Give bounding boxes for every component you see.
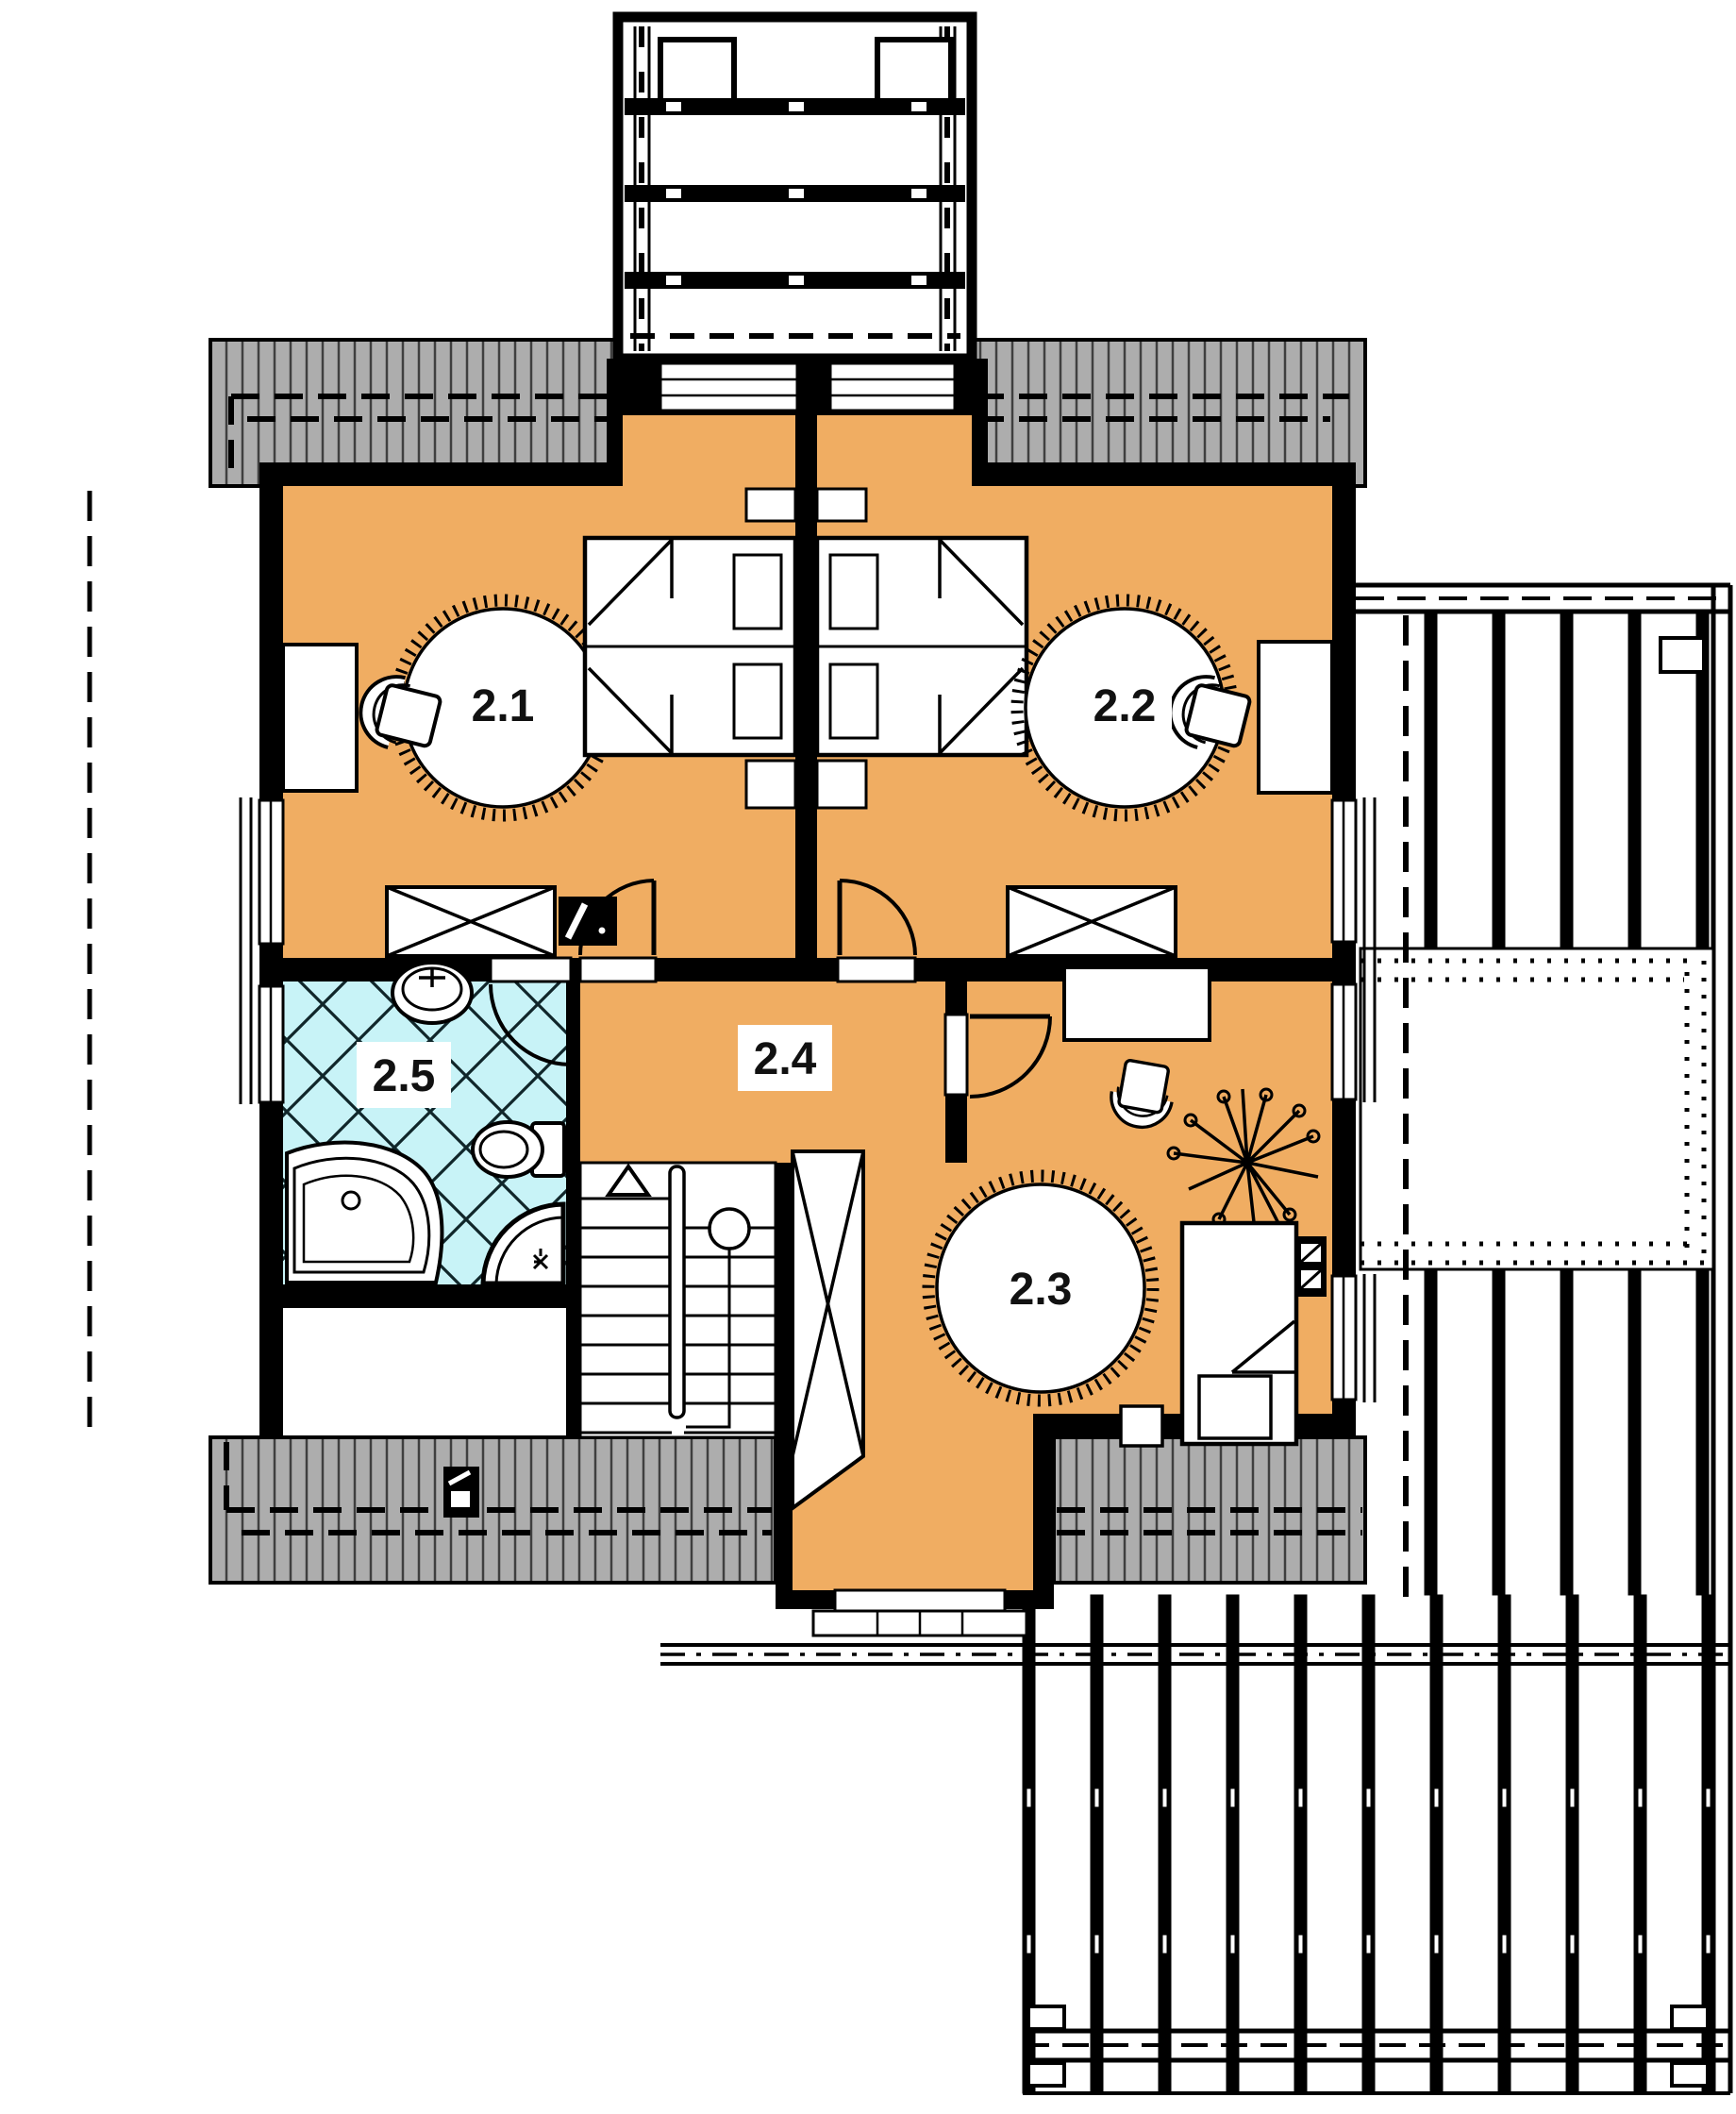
top-balcony-structure: [618, 17, 972, 359]
nightstand-2-3: [1121, 1406, 1162, 1446]
chimney: [443, 1467, 479, 1518]
floor-plan-drawing: 2.1 2.2 2.3 2.4 2.5: [0, 0, 1736, 2114]
shelf-2-1-top: [746, 489, 795, 521]
floor-plan-canvas: 2.1 2.2 2.3 2.4 2.5: [0, 0, 1736, 2114]
toilet: [473, 1122, 564, 1177]
wardrobe-2-2: [1259, 642, 1332, 793]
svg-text:2.3: 2.3: [1010, 1265, 1073, 1315]
heater-2-3: [1296, 1236, 1327, 1297]
stair-newel-post: [709, 1209, 749, 1249]
stair-handrail: [670, 1166, 684, 1418]
balcony-door-bottom: [813, 1590, 1027, 1636]
wardrobe-crossed-2-1: [387, 887, 555, 956]
terrace-opening: [1360, 948, 1713, 1269]
room-label-2-5: 2.5: [357, 1042, 451, 1108]
room-label-2-1: 2.1: [456, 672, 550, 738]
bed-2-1: [585, 538, 795, 755]
shelf-2-2-bottom: [817, 761, 866, 808]
window-left-bathroom: [259, 986, 283, 1102]
shelf-2-2-top: [817, 489, 866, 521]
svg-text:2.1: 2.1: [472, 681, 535, 731]
svg-text:2.2: 2.2: [1093, 681, 1157, 731]
desk-2-3: [1064, 967, 1210, 1040]
staircase: [580, 1163, 776, 1437]
svg-text:2.4: 2.4: [754, 1034, 817, 1084]
closet-crossed-tall: [793, 1151, 863, 1508]
svg-text:2.5: 2.5: [373, 1051, 436, 1101]
vent-shaft-2-1: [559, 897, 617, 946]
bed-2-2: [817, 538, 1027, 755]
wardrobe-crossed-2-2: [1008, 887, 1176, 956]
sink: [392, 963, 472, 1023]
shelf-2-1-bottom: [746, 761, 795, 808]
room-label-2-2: 2.2: [1077, 672, 1172, 738]
window-right-room-2-3: [1332, 1276, 1356, 1400]
room-label-2-4: 2.4: [738, 1025, 832, 1091]
bed-2-3: [1182, 1223, 1296, 1444]
dresser-2-1: [283, 645, 357, 791]
window-left-room-2-1: [259, 800, 283, 944]
room-label-2-3: 2.3: [993, 1255, 1088, 1321]
